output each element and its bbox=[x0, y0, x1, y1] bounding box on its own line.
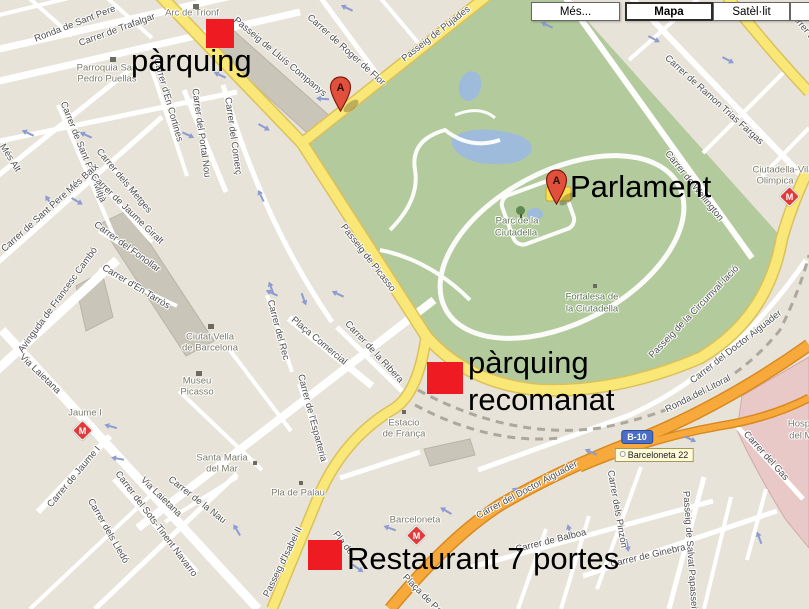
poi-label: Estacio bbox=[388, 418, 419, 429]
monument-icon bbox=[193, 4, 199, 9]
annotation-marker bbox=[427, 362, 463, 394]
poi-label: Ciutadella bbox=[495, 228, 537, 239]
annotation-marker bbox=[308, 540, 342, 570]
annotation-text: Parlament bbox=[570, 168, 711, 205]
poi-label: Museu bbox=[183, 376, 212, 387]
poi-label: del Mar bbox=[789, 431, 809, 442]
annotation-line: pàrquing bbox=[468, 344, 614, 381]
poi-label: Parc de la bbox=[496, 216, 539, 227]
annotation-text: pàrquing bbox=[131, 42, 252, 79]
poi-label: de França bbox=[383, 429, 426, 440]
annotation-line: Restaurant 7 portes bbox=[347, 540, 619, 577]
poi-label: la Ciutadella bbox=[566, 304, 618, 315]
exit-badge: Barceloneta 22 bbox=[615, 448, 694, 462]
poi-label: Olimpica bbox=[757, 176, 794, 187]
poi-label: Picasso bbox=[180, 387, 213, 398]
museum-icon bbox=[196, 371, 202, 376]
poi-label: Barceloneta bbox=[390, 515, 441, 526]
poi-label: Santa Maria bbox=[196, 453, 247, 464]
square-icon bbox=[402, 410, 406, 414]
poi-label: Ciutadella-Vila bbox=[752, 165, 809, 176]
poi-label: del Mar bbox=[206, 464, 238, 475]
square-icon bbox=[299, 481, 303, 485]
poi-label: Fortalesa de bbox=[566, 292, 619, 303]
motorway-badge: B-10 bbox=[621, 430, 653, 444]
poi-label: Ciutat Vella bbox=[186, 332, 234, 343]
map-canvas[interactable]: Ronda de Sant PereCarrer de TrafalgarPas… bbox=[0, 0, 809, 609]
metro-letter: M bbox=[783, 190, 796, 203]
metro-letter: M bbox=[76, 424, 89, 437]
hotel-icon bbox=[208, 324, 214, 329]
square-icon bbox=[593, 284, 597, 288]
map-pin-a[interactable]: A bbox=[545, 169, 568, 210]
poi-label: Hospital bbox=[788, 419, 809, 430]
poi-label: Arc de Trionf bbox=[165, 8, 219, 19]
map-type-button-ms[interactable]: Més... bbox=[531, 2, 620, 21]
map-type-button-relleu[interactable]: Relleu bbox=[790, 2, 809, 21]
map-type-button-mapa[interactable]: Mapa bbox=[625, 2, 713, 21]
poi-label: Pla de Palau bbox=[271, 488, 325, 499]
svg-text:A: A bbox=[336, 82, 344, 94]
square-icon bbox=[253, 461, 257, 465]
poi-label: Pedro Puellas bbox=[77, 74, 136, 85]
annotation-text: pàrquingrecomanat bbox=[468, 344, 614, 418]
poi-label: Jaume I bbox=[68, 408, 102, 419]
map-type-button-satllit[interactable]: Satèl·lit bbox=[713, 2, 790, 21]
map-pin-a[interactable]: A bbox=[329, 76, 352, 117]
svg-text:A: A bbox=[552, 175, 560, 187]
annotation-line: recomanat bbox=[468, 381, 614, 418]
annotation-line: Parlament bbox=[570, 168, 711, 205]
tree-icon bbox=[516, 206, 525, 215]
church-icon bbox=[110, 57, 116, 62]
annotation-line: pàrquing bbox=[131, 42, 252, 79]
poi-label: Parroquia San bbox=[77, 63, 138, 74]
annotation-text: Restaurant 7 portes bbox=[347, 540, 619, 577]
poi-label: de Barcelona bbox=[182, 343, 238, 354]
